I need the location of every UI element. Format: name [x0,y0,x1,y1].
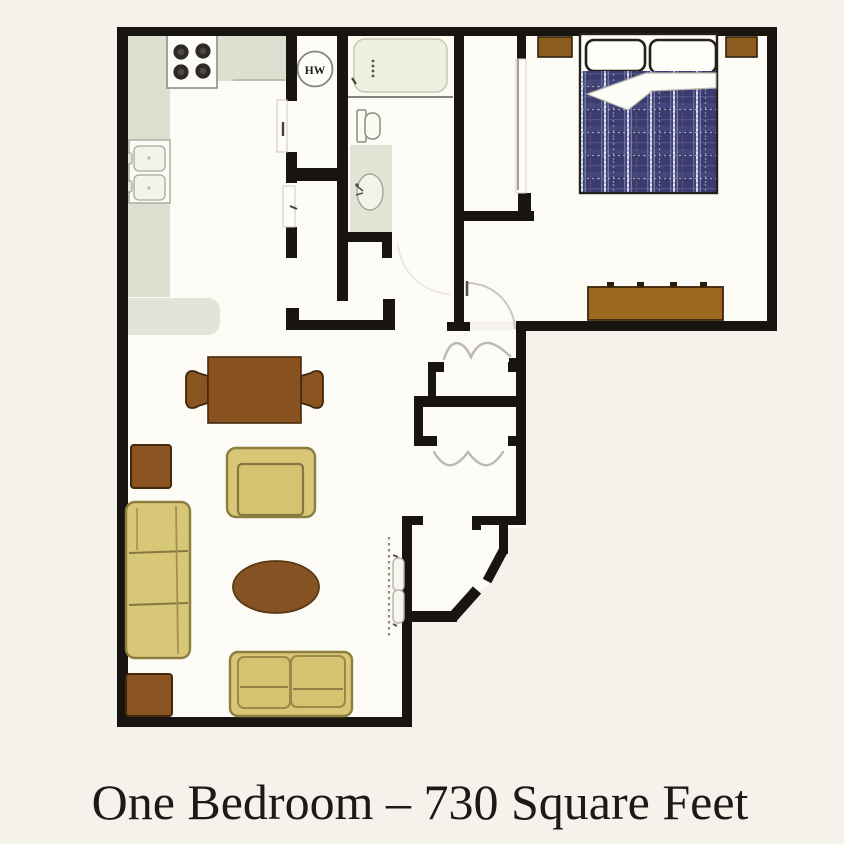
svg-text:HW: HW [305,65,326,77]
svg-text:One Bedroom – 730 Square Feet: One Bedroom – 730 Square Feet [92,774,749,830]
